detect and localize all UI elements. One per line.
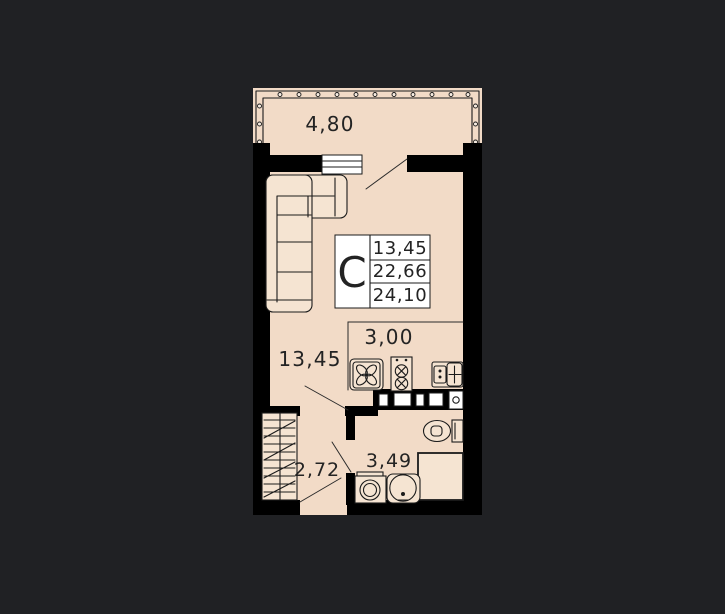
window bbox=[322, 155, 362, 174]
living-room-label: 13,45 bbox=[278, 347, 341, 371]
hob-flower-icon bbox=[350, 359, 383, 390]
stove-burners-icon bbox=[391, 357, 412, 391]
wall-bath-stub-top bbox=[346, 406, 355, 440]
area-value-living: 13,45 bbox=[373, 238, 428, 259]
floorplan-stage: С 13,45 22,66 24,10 4,80 13,45 3,00 2,72… bbox=[0, 0, 725, 614]
bathroom-label: 3,49 bbox=[366, 450, 412, 472]
wall-right bbox=[463, 143, 482, 515]
balcony-label: 4,80 bbox=[305, 112, 354, 136]
washing-machine-icon bbox=[355, 472, 386, 503]
vent-fan-icon bbox=[449, 391, 463, 409]
area-value-total: 22,66 bbox=[373, 261, 428, 282]
wall-balcony-left bbox=[270, 155, 322, 172]
kitchen-label: 3,00 bbox=[364, 325, 413, 349]
kitchen-sink-icon bbox=[432, 362, 463, 387]
toilet-icon bbox=[424, 420, 464, 442]
area-value-total-balcony: 24,10 bbox=[373, 285, 428, 306]
washbasin-icon bbox=[387, 474, 420, 503]
apartment-type-letter: С bbox=[337, 248, 366, 297]
floorplan-svg: С 13,45 22,66 24,10 4,80 13,45 3,00 2,72… bbox=[0, 0, 725, 614]
wall-balcony-right bbox=[407, 155, 463, 172]
wall-bottom-left bbox=[253, 500, 300, 515]
wardrobe-icon bbox=[262, 413, 297, 500]
shower-tray-icon bbox=[418, 453, 463, 500]
hallway-label: 2,72 bbox=[294, 459, 340, 481]
info-box: С 13,45 22,66 24,10 bbox=[335, 235, 430, 308]
